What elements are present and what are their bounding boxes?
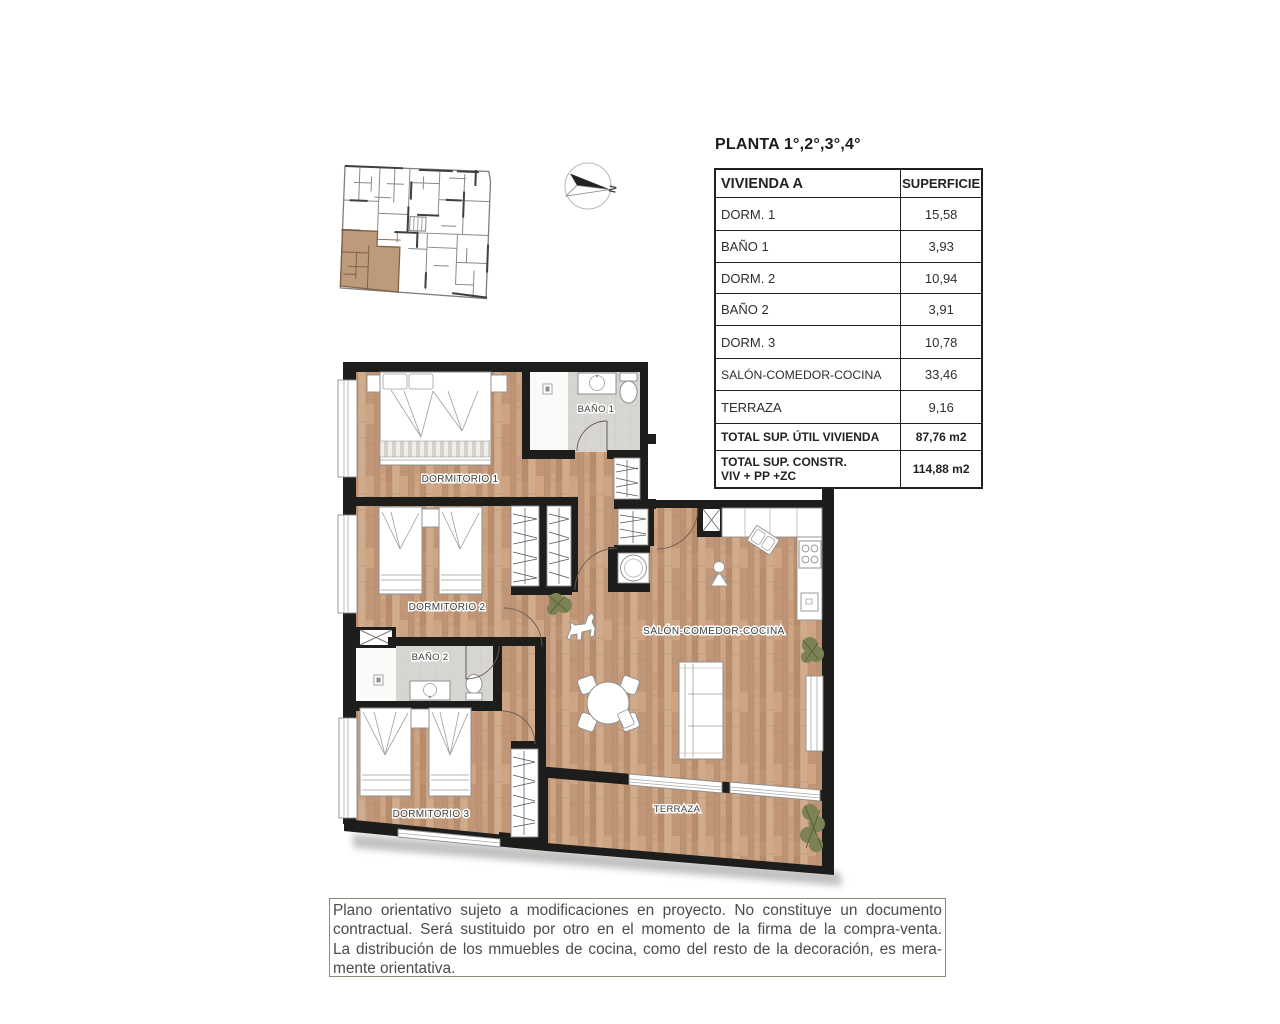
svg-text:DORMITORIO 2: DORMITORIO 2 xyxy=(409,602,486,613)
svg-text:DORMITORIO 1: DORMITORIO 1 xyxy=(422,474,499,485)
svg-text:BAÑO 1: BAÑO 1 xyxy=(578,404,615,415)
svg-text:BAÑO 2: BAÑO 2 xyxy=(412,652,449,663)
svg-text:SALÓN-COMEDOR-COCINA: SALÓN-COMEDOR-COCINA xyxy=(643,624,785,637)
svg-text:DORMITORIO 3: DORMITORIO 3 xyxy=(393,809,470,820)
svg-text:TERRAZA: TERRAZA xyxy=(654,804,701,815)
svg-text:N: N xyxy=(606,184,618,193)
